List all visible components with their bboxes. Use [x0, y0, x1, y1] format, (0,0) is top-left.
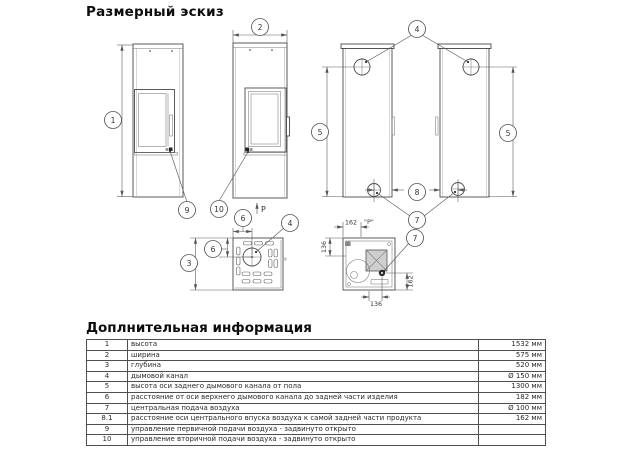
handle-profile — [436, 117, 439, 135]
info-table: 1 высота 1532 мм 2 ширина 575 мм 3 глуби… — [86, 339, 546, 446]
row-number: 2 — [87, 350, 128, 361]
callout-flue-topview: 4 — [282, 215, 299, 232]
screw-icon — [249, 49, 251, 51]
svg-text:4: 4 — [415, 25, 420, 34]
row-value: 520 мм — [479, 361, 546, 372]
row-value: Ø 150 мм — [479, 371, 546, 382]
row-label: центральная подача воздуха — [128, 403, 479, 414]
row-number: 6 — [87, 392, 128, 403]
stove-body — [233, 43, 287, 198]
row-value: 1300 мм — [479, 382, 546, 393]
table-row: 4 дымовой канал Ø 150 мм — [87, 371, 546, 382]
screw-icon — [271, 49, 273, 51]
front-view-right — [233, 43, 290, 198]
row-value: 1532 мм — [479, 340, 546, 351]
dim-136-left: 136 — [321, 241, 328, 253]
row-number: 5 — [87, 382, 128, 393]
row-value: 575 мм — [479, 350, 546, 361]
table-row: 3 глубина 520 мм — [87, 361, 546, 372]
callout-flue-top: 4 — [409, 21, 426, 38]
callout-flue-height-left: 5 — [312, 124, 329, 141]
callout-air-inlet-side: 7 — [409, 212, 426, 229]
svg-text:7: 7 — [415, 216, 420, 225]
svg-text:6: 6 — [241, 214, 246, 223]
svg-text:6: 6 — [211, 245, 216, 254]
svg-text:9: 9 — [185, 206, 190, 215]
top-plate — [438, 44, 491, 49]
view-p-arrow-label: P — [261, 205, 266, 214]
svg-text:3: 3 — [187, 259, 192, 268]
slider-slot — [250, 148, 253, 151]
table-row: 9 управление первичной подачи воздуха - … — [87, 424, 546, 435]
table-row: 8.1 расстояние оси центрального впуска в… — [87, 414, 546, 425]
table-row: 1 высота 1532 мм — [87, 340, 546, 351]
svg-text:2: 2 — [258, 23, 263, 32]
row-number: 10 — [87, 435, 128, 446]
stove-body — [133, 44, 183, 197]
top-view — [233, 238, 286, 290]
svg-text:8: 8 — [415, 188, 420, 197]
row-value — [479, 435, 546, 446]
callout-flue-offset-h: 6 — [235, 210, 252, 227]
stove-body — [440, 49, 489, 198]
svg-text:7: 7 — [413, 234, 418, 243]
row-number: 9 — [87, 424, 128, 435]
callout-air-offset: 8 — [409, 184, 426, 201]
dim-162-top: 162 — [345, 220, 357, 227]
row-number: 7 — [87, 403, 128, 414]
screw-icon — [149, 50, 151, 52]
row-label: управление первичной подачи воздуха - за… — [128, 424, 479, 435]
table-row: 5 высота оси заднего дымового канала от … — [87, 382, 546, 393]
callout-width: 2 — [252, 19, 269, 36]
row-number: 1 — [87, 340, 128, 351]
info-heading: Доплнительная информация — [86, 320, 546, 336]
secondary-air-slider — [246, 148, 250, 152]
top-plate — [341, 44, 394, 49]
svg-text:1: 1 — [111, 116, 116, 125]
row-label: расстояние оси центрального впуска возду… — [128, 414, 479, 425]
row-label: ширина — [128, 350, 479, 361]
svg-text:4: 4 — [288, 219, 293, 228]
svg-text:5: 5 — [318, 128, 323, 137]
callout-height: 1 — [105, 112, 122, 129]
callout-depth: 3 — [181, 255, 198, 272]
row-label: высота оси заднего дымового канала от по… — [128, 382, 479, 393]
callout-primary-air: 9 — [179, 202, 196, 219]
svg-text:10: 10 — [214, 205, 224, 214]
row-label: управление вторичной подачи воздуха - за… — [128, 435, 479, 446]
row-value: 162 мм — [479, 414, 546, 425]
dim-136-bottom: 136 — [370, 301, 382, 308]
handle-tip — [283, 258, 286, 260]
callout-air-inlet-bottom: 7 — [407, 230, 424, 247]
slider-slot — [166, 148, 169, 151]
additional-info-section: Доплнительная информация 1 высота 1532 м… — [86, 320, 546, 446]
row-value — [479, 424, 546, 435]
door-handle — [287, 117, 290, 136]
bottom-view-p: "P" — [343, 218, 395, 290]
row-label: высота — [128, 340, 479, 351]
callout-flue-offset-v: 6 — [205, 241, 222, 258]
row-label: дымовой канал — [128, 371, 479, 382]
row-label: расстояние от оси верхнего дымового кана… — [128, 392, 479, 403]
dimensional-drawing: "P" — [0, 0, 624, 322]
table-row: 2 ширина 575 мм — [87, 350, 546, 361]
table-row: 7 центральная подача воздуха Ø 100 мм — [87, 403, 546, 414]
row-number: 3 — [87, 361, 128, 372]
row-value: Ø 100 мм — [479, 403, 546, 414]
row-number: 8.1 — [87, 414, 128, 425]
view-p-label: "P" — [364, 218, 374, 226]
manual-page: Размерный эскиз — [0, 0, 624, 460]
svg-text:5: 5 — [506, 129, 511, 138]
row-number: 4 — [87, 371, 128, 382]
table-row: 10 управление вторичной подачи воздуха -… — [87, 435, 546, 446]
dim-162-right: 162 — [408, 275, 415, 287]
table-row: 6 расстояние от оси верхнего дымового ка… — [87, 392, 546, 403]
stove-body — [343, 49, 392, 198]
row-value: 182 мм — [479, 392, 546, 403]
screw-icon — [171, 50, 173, 52]
callout-flue-height-right: 5 — [500, 125, 517, 142]
front-view-left — [133, 44, 183, 197]
callout-secondary-air: 10 — [211, 201, 228, 218]
row-label: глубина — [128, 361, 479, 372]
